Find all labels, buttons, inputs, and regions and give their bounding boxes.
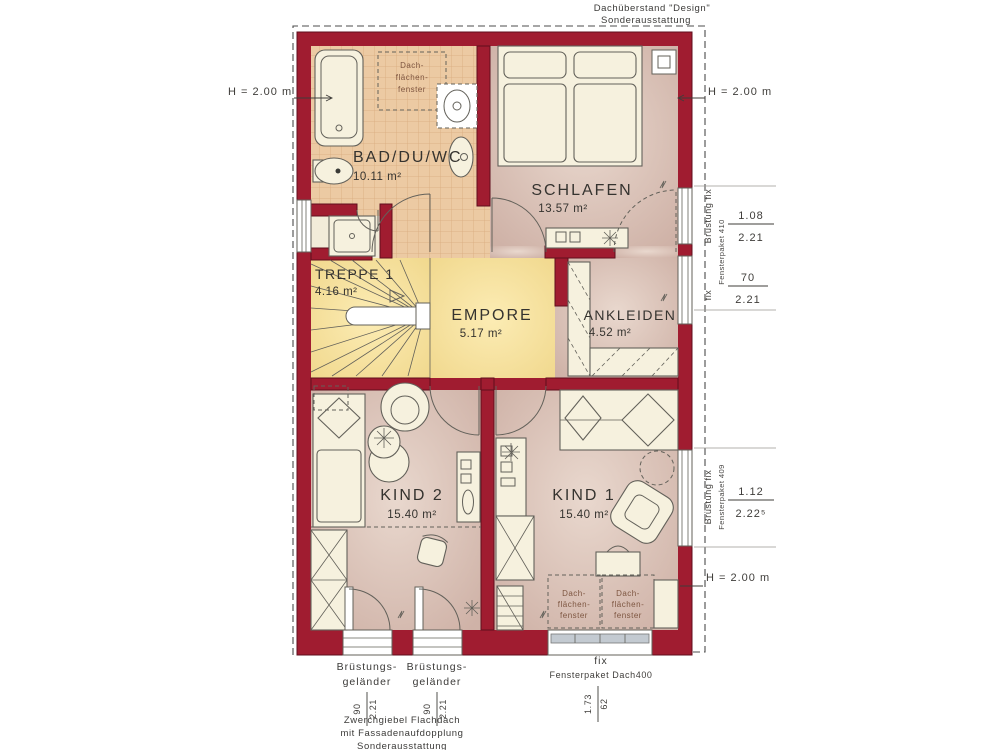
balcony-door-sill-1 xyxy=(343,630,392,655)
kind2-desk xyxy=(457,452,480,522)
skylight-label-bad: Dach- flächen- fenster xyxy=(396,61,428,94)
svg-text:mit Fassadenaufdopplung: mit Fassadenaufdopplung xyxy=(340,728,463,739)
svg-text:fix: fix xyxy=(594,655,608,667)
svg-text:geländer: geländer xyxy=(343,676,392,688)
kind1-dresser xyxy=(654,580,678,628)
svg-text:fenster: fenster xyxy=(560,611,588,620)
svg-text:flächen-: flächen- xyxy=(612,600,644,609)
svg-text:geländer: geländer xyxy=(413,676,462,688)
svg-text:62: 62 xyxy=(599,698,609,709)
kind2-wardrobe xyxy=(311,530,347,630)
svg-text:2.22⁵: 2.22⁵ xyxy=(736,508,767,520)
kind1-bed xyxy=(560,390,678,450)
floor-plan-drawing: Dachüberstand "Design" Sonderausstattung… xyxy=(0,0,1000,750)
svg-text:Brüstungs-: Brüstungs- xyxy=(407,661,468,673)
room-area-kind2: 15.40 m² xyxy=(387,509,436,521)
room-area-schlafen: 13.57 m² xyxy=(538,203,587,215)
kind2-bed xyxy=(313,394,365,527)
window-paket-409: Fensterpaket 409 xyxy=(717,464,726,530)
svg-text:Fensterpaket Dach400: Fensterpaket Dach400 xyxy=(549,670,652,680)
vanity-sink xyxy=(437,84,477,128)
room-area-bad: 10.11 m² xyxy=(353,171,402,183)
bottom-fix-window-label: fix Fensterpaket Dach400 1.73 62 xyxy=(549,655,652,722)
svg-text:Dach-: Dach- xyxy=(616,589,640,598)
room-area-kind1: 15.40 m² xyxy=(559,509,608,521)
bottom-note: Zwerchgiebel Flachdach mit Fassadenaufdo… xyxy=(340,715,463,750)
window-label-bruestung-fix-lower: Brüstung fix xyxy=(703,470,713,525)
kind1-ladder xyxy=(497,586,523,630)
svg-text:Zwerchgiebel Flachdach: Zwerchgiebel Flachdach xyxy=(344,715,460,726)
window-label-fix-upper: fix xyxy=(703,290,713,301)
room-area-treppe: 4.16 m² xyxy=(315,286,358,298)
toilet xyxy=(313,158,353,184)
svg-text:fenster: fenster xyxy=(614,611,642,620)
room-area-ankleiden: 4.52 m² xyxy=(589,327,632,339)
height-label-left: H = 2.00 m xyxy=(228,86,292,98)
skylight-label-kind1-left: Dach- flächen- fenster xyxy=(558,589,590,620)
window-label-bruestung-fix-upper: Brüstung fix xyxy=(703,189,713,244)
window-dim-70-221: 70 2.21 xyxy=(728,272,768,306)
room-label-treppe: TREPPE 1 xyxy=(315,266,395,282)
svg-text:90: 90 xyxy=(422,703,432,714)
window-dim-108-221: 1.08 2.21 xyxy=(728,210,774,244)
room-label-kind2: KIND 2 xyxy=(380,487,444,504)
svg-text:1.12: 1.12 xyxy=(738,486,763,498)
roof-note-line1: Dachüberstand "Design" xyxy=(594,3,711,14)
svg-text:fenster: fenster xyxy=(398,85,426,94)
room-label-kind1: KIND 1 xyxy=(552,487,616,504)
height-label-right-bottom: H = 2.00 m xyxy=(706,572,770,584)
svg-text:1.08: 1.08 xyxy=(738,210,763,222)
room-label-ankleiden: ANKLEIDEN xyxy=(584,307,677,323)
skylight-label-kind1-right: Dach- flächen- fenster xyxy=(612,589,644,620)
bottom-fixed-window xyxy=(548,630,652,655)
room-area-empore: 5.17 m² xyxy=(460,328,503,340)
kind2-plant xyxy=(464,600,480,616)
svg-text:1.73: 1.73 xyxy=(583,694,593,714)
window-dim-112-222: 1.12 2.22⁵ xyxy=(728,486,774,520)
kind1-cabinet xyxy=(496,516,534,580)
floor-plan-page: Dachüberstand "Design" Sonderausstattung… xyxy=(0,0,1000,750)
svg-text:flächen-: flächen- xyxy=(558,600,590,609)
right-window-upper xyxy=(678,188,692,324)
svg-text:Brüstungs-: Brüstungs- xyxy=(337,661,398,673)
room-label-bad: BAD/DU/WC xyxy=(353,149,463,166)
kind2-armchair xyxy=(381,383,429,431)
double-bed xyxy=(498,46,642,166)
svg-text:flächen-: flächen- xyxy=(396,73,428,82)
svg-text:Dach-: Dach- xyxy=(400,61,424,70)
svg-text:70: 70 xyxy=(741,272,755,284)
svg-text:2.21: 2.21 xyxy=(738,232,763,244)
balcony-door-sill-2 xyxy=(413,630,462,655)
chimney xyxy=(652,50,676,74)
room-label-empore: EMPORE xyxy=(451,307,532,324)
right-window-lower xyxy=(678,450,692,546)
roof-note-line2: Sonderausstattung xyxy=(601,15,691,26)
room-label-schlafen: SCHLAFEN xyxy=(531,182,632,199)
window-paket-410: Fensterpaket 410 xyxy=(717,219,726,285)
schlafen-door-threshold xyxy=(490,246,545,258)
svg-text:Dach-: Dach- xyxy=(562,589,586,598)
svg-text:90: 90 xyxy=(352,703,362,714)
shower xyxy=(329,216,375,256)
svg-text:Sonderausstattung: Sonderausstattung xyxy=(357,741,447,750)
height-label-right-top: H = 2.00 m xyxy=(708,86,772,98)
left-wall-window xyxy=(297,200,311,252)
svg-text:2.21: 2.21 xyxy=(735,294,760,306)
